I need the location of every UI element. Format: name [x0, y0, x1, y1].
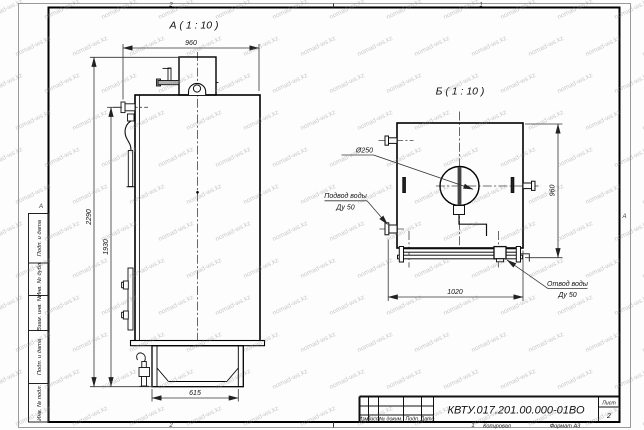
side-strip-labels: Подп. и дата Инв. № дубл. Взам. инв. № П… [37, 219, 43, 420]
col-podp: Подп. [405, 417, 419, 423]
base-stand [152, 346, 243, 387]
hinge-knob-lower [123, 311, 128, 319]
outer-border [19, 4, 631, 428]
top-left-fitting-flange [385, 136, 389, 145]
dim-text-615: 615 [189, 390, 201, 397]
zone-left: А [38, 204, 43, 210]
right-fitting-pipe [523, 183, 532, 189]
footer-text: Копировал Формат А3 [483, 423, 581, 429]
view-a-title: А ( 1 : 10 ) [168, 20, 218, 32]
label-outlet-line1: Отвод воды [547, 280, 589, 288]
technical-drawing: 2 1 2 1 А А Подп. и дата Инв. № дубл. Вз… [0, 0, 644, 430]
sheet-frame [19, 4, 631, 428]
footer-copied: Копировал [483, 423, 512, 429]
zone-right: А [621, 214, 626, 220]
damper-box [454, 206, 465, 215]
leader-outlet [507, 260, 548, 289]
door-hinge-bar [128, 268, 133, 330]
right-slot [511, 178, 514, 193]
dim-text-1930: 1930 [103, 239, 110, 255]
sheet-number: 2 [606, 413, 611, 420]
strip-cell-2: Инв. № дубл. [37, 261, 43, 297]
hinge-knob-upper [123, 281, 128, 289]
leader-inlet [367, 201, 388, 225]
col-docnum: № докум. [379, 417, 402, 423]
water-inlet-pipe [389, 225, 397, 233]
upper-fitting-pipe [125, 104, 135, 111]
title-block-text: Изм. Лист № докум. Подп. Дата КВТУ.017.2… [358, 401, 616, 423]
rail-left-bracket [399, 247, 403, 263]
strip-cell-3: Взам. инв. № [37, 295, 43, 331]
inner-frame [49, 8, 620, 423]
bottom-flange [131, 341, 265, 346]
damper-handle [459, 215, 487, 237]
view-b-title: Б ( 1 : 10 ) [436, 86, 485, 98]
dim-text-960: 960 [185, 40, 197, 47]
right-fitting-flange [532, 181, 536, 190]
center-mark-dot [196, 191, 199, 194]
water-inlet-flange [385, 223, 389, 235]
view-a: А ( 1 : 10 ) [86, 20, 265, 402]
rail-right-bracket [516, 247, 520, 263]
label-inlet-line2: Ду 50 [335, 205, 354, 212]
drain-valve [137, 353, 150, 386]
label-inlet-line1: Подвод воды [324, 192, 367, 200]
view-b: Б ( 1 : 10 ) [324, 86, 589, 302]
left-slot [403, 178, 406, 193]
zone-markers: 2 1 2 1 А А [38, 3, 627, 430]
dim-text-1020: 1020 [447, 289, 463, 296]
label-outlet-line2: Ду 50 [557, 292, 576, 299]
latch-hook [125, 121, 131, 151]
zone-bottom-left: 2 [168, 423, 173, 429]
col-data: Дата [420, 417, 435, 423]
dim-text-2290: 2290 [86, 209, 93, 226]
zone-top-right: 1 [479, 3, 482, 9]
sheet-label: Лист [601, 401, 616, 407]
latch-top [128, 114, 135, 121]
water-outlet-box [494, 247, 506, 259]
footer-format: Формат А3 [550, 423, 581, 429]
dim-text-960b: 960 [550, 185, 557, 197]
side-pipe [158, 81, 179, 85]
zone-top-left: 2 [168, 3, 173, 9]
drawing-sheet: 2 1 2 1 А А Подп. и дата Инв. № дубл. Вз… [0, 0, 644, 430]
strip-cell-1: Подп. и дата [37, 219, 43, 256]
strip-cell-5: Инв. № подл. [37, 385, 43, 421]
document-number: КВТУ.017.201.00.000-01ВО [447, 405, 584, 417]
damper-bar [458, 167, 462, 206]
top-left-fitting-pipe [389, 138, 398, 144]
strip-cell-4: Подп. и дата [37, 338, 43, 375]
label-diameter: Ø250 [355, 148, 373, 155]
latch-bar [128, 151, 132, 187]
zone-bottom-right: 1 [471, 423, 474, 429]
